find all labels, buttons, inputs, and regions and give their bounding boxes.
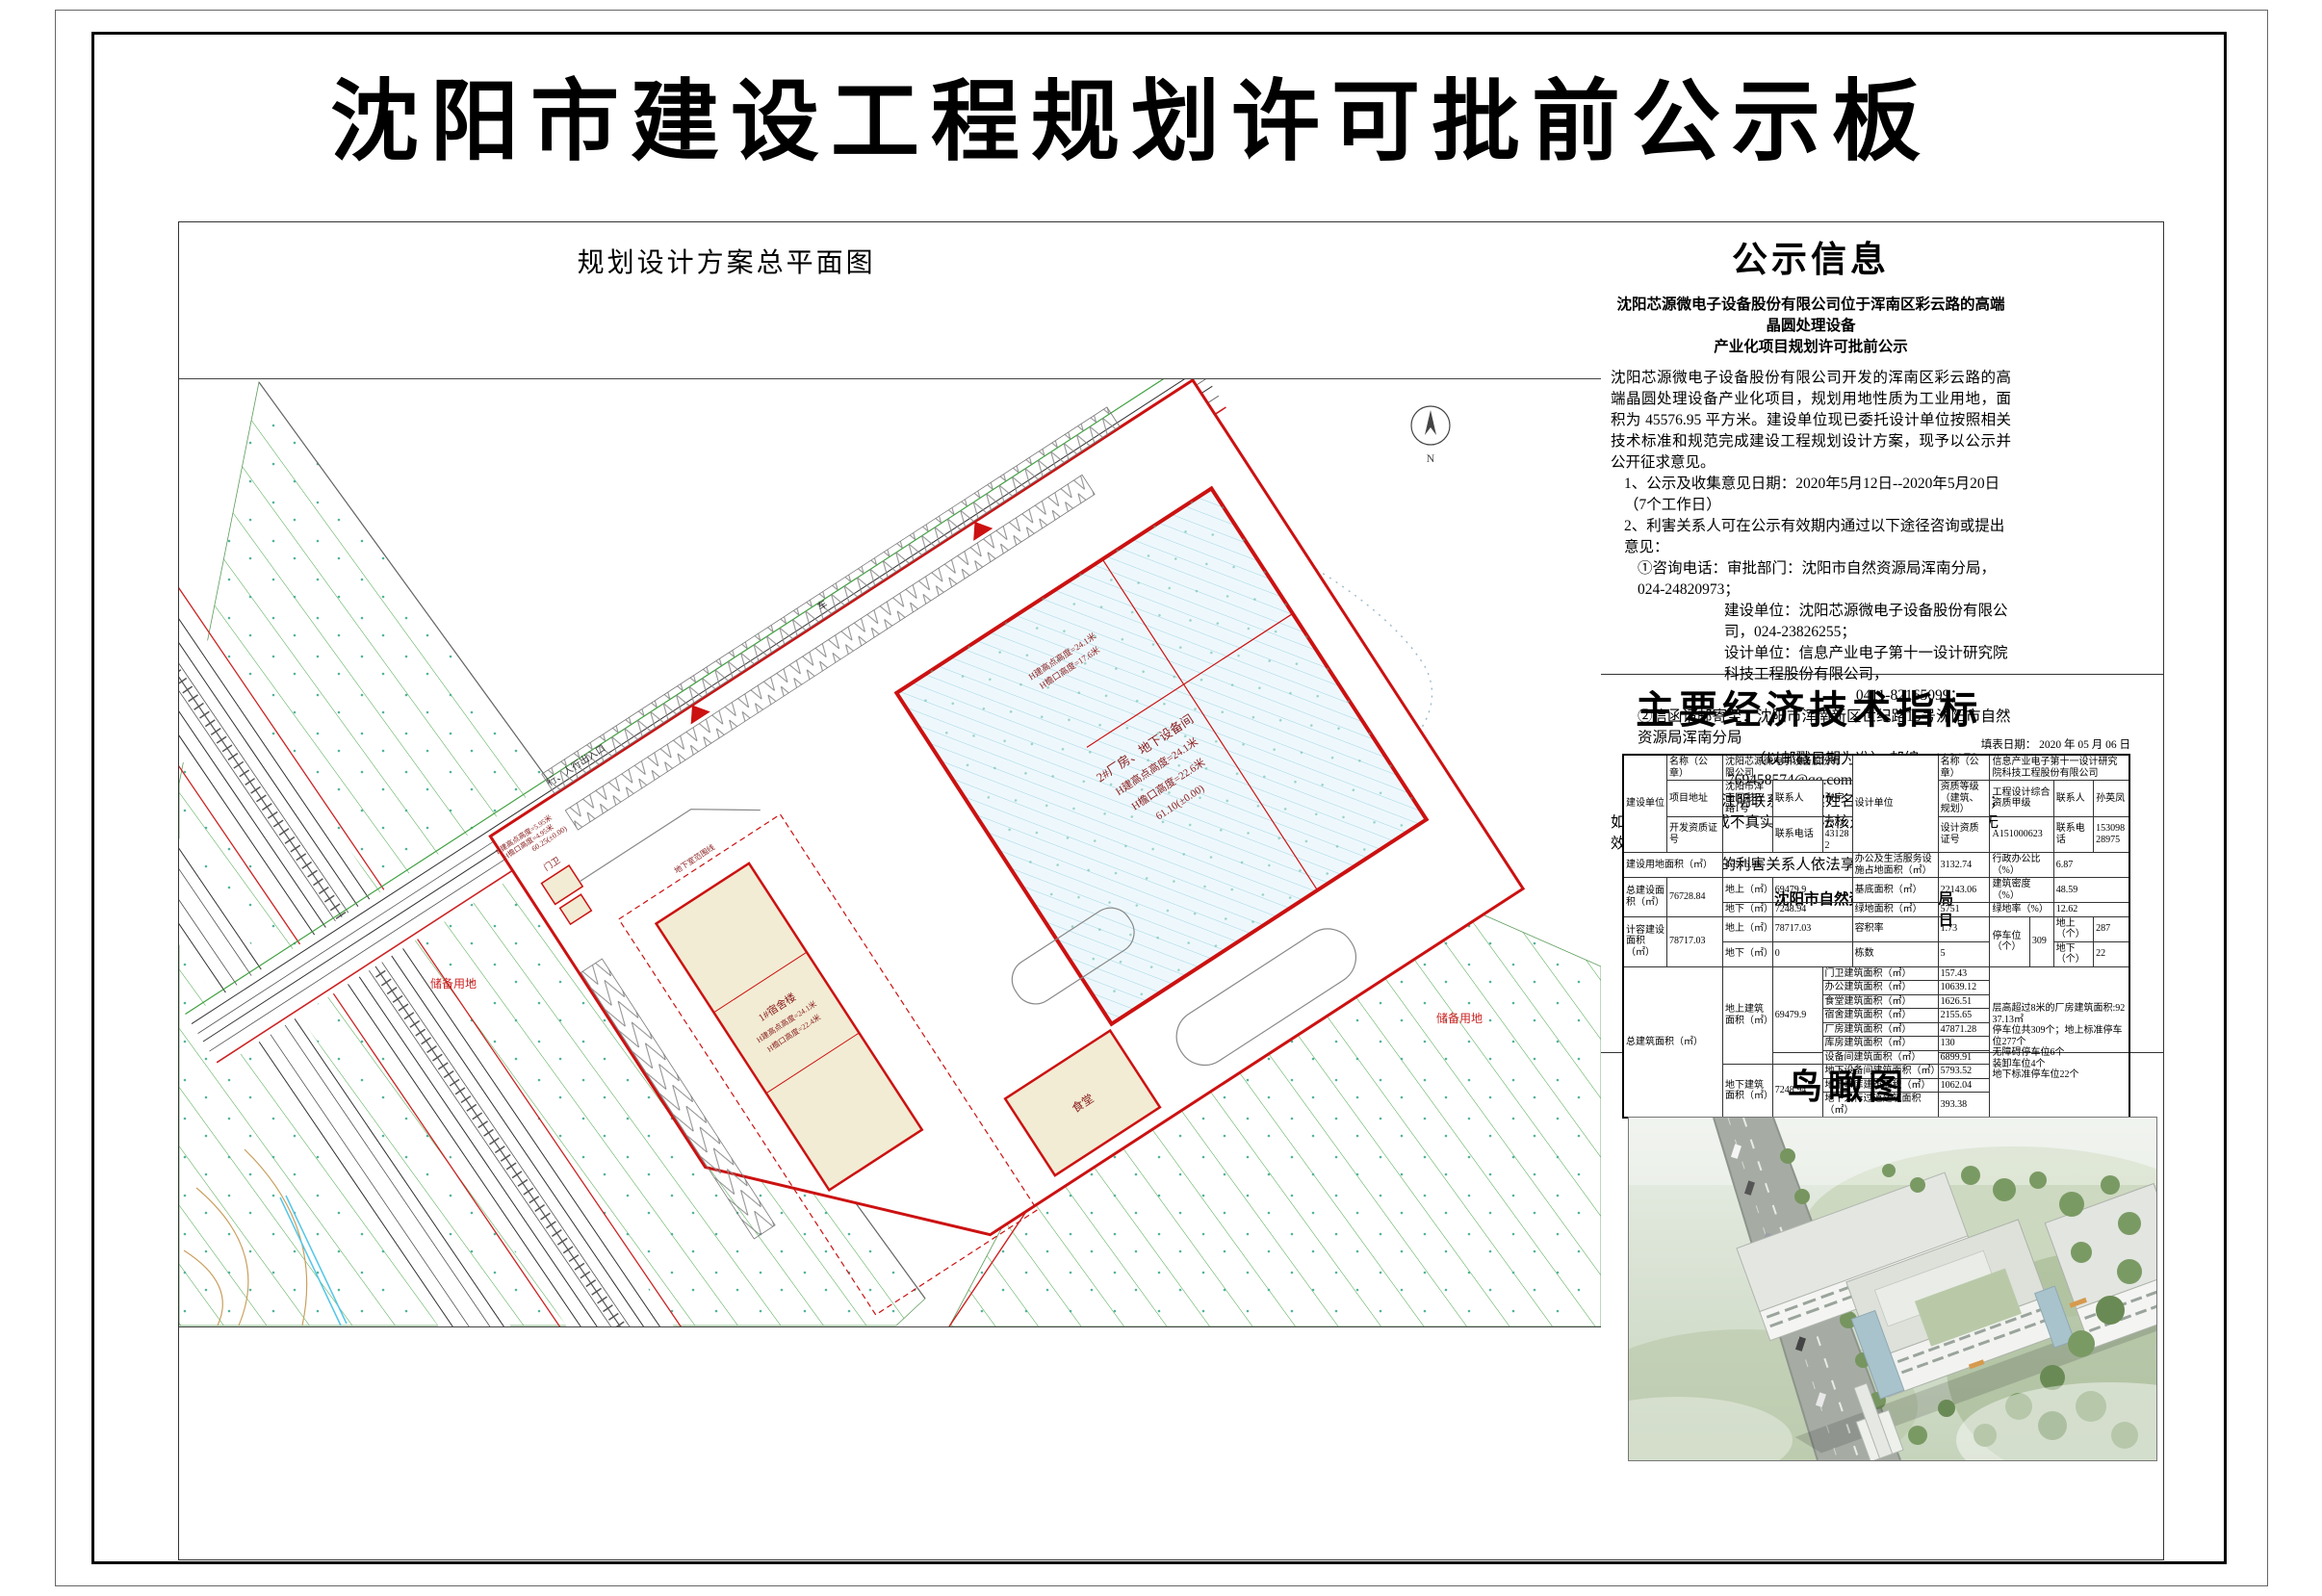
owner-addr-label: 项目地址: [1667, 781, 1723, 817]
below-value: 7248.94: [1772, 903, 1852, 917]
above-value: 69479.9: [1772, 878, 1852, 903]
blocks-label: 栋数: [1852, 941, 1938, 966]
page-title: 沈阳市建设工程规划许可批前公示板: [91, 50, 2171, 178]
cap-value: 78717.03: [1667, 916, 1723, 966]
notice-line-phone-owner: 建设单位：沈阳芯源微电子设备股份有限公司，024-23826255；: [1611, 601, 2011, 643]
public-notice-section: 公示信息 沈阳芯源微电子设备股份有限公司位于浑南区彩云路的高端晶圆处理设备 产业…: [1601, 222, 2163, 675]
designer-grade-label: 资质等级（建筑、规划）: [1938, 781, 1990, 817]
blocks-value: 5: [1938, 941, 1990, 966]
cap-below-value: 0: [1772, 941, 1852, 966]
designer-name: 信息产业电子第十一设计研究院科技工程股份有限公司: [1990, 755, 2129, 781]
notice-line-dates: 1、公示及收集意见日期：2020年5月12日--2020年5月20日（7个工作日…: [1611, 474, 2011, 516]
birdseye-rendering: [1628, 1117, 2157, 1461]
reserved-land-label-east: 储备用地: [1436, 1011, 1483, 1025]
green-value: 5751: [1938, 903, 1990, 917]
notice-subtitle: 沈阳芯源微电子设备股份有限公司位于浑南区彩云路的高端晶圆处理设备 产业化项目规划…: [1611, 295, 2011, 358]
designer-contact: 孙英凤: [2094, 781, 2129, 817]
gfa-above-value: 69479.9: [1772, 966, 1822, 1065]
indicators-section: 主要经济技术指标 填表日期： 2020 年 05 月 06 日 建设单位 名称（…: [1601, 675, 2163, 1053]
item-value: 2155.65: [1938, 1009, 1990, 1023]
admin-ratio-label: 行政办公比（%）: [1990, 853, 2053, 878]
designer-contact-label: 联系人: [2053, 781, 2093, 817]
item-label: 库房建筑面积（㎡）: [1822, 1037, 1938, 1051]
designer-phone: 15309828975: [2094, 816, 2129, 853]
table-row: 总建筑面积（㎡） 地上建筑面积（㎡） 69479.9 门卫建筑面积（㎡） 157…: [1623, 966, 2129, 981]
green-label: 绿地面积（㎡）: [1852, 903, 1938, 917]
reserved-land-label-west: 储备用地: [430, 976, 477, 991]
owner-group-cell: 建设单位: [1623, 755, 1667, 853]
site-plan-panel: 规划设计方案总平面图: [178, 221, 1602, 1560]
owner-phone-label: 联系电话: [1772, 816, 1822, 853]
item-value: 47871.28: [1938, 1022, 1990, 1037]
item-label: 门卫建筑面积（㎡）: [1822, 966, 1938, 981]
green-rate-label: 绿地率（%）: [1990, 903, 2053, 917]
owner-phone: 13332431282: [1822, 816, 1852, 853]
cap-above-value: 78717.03: [1772, 916, 1852, 941]
item-label: 办公建筑面积（㎡）: [1822, 981, 1938, 995]
land-value: 45576.95: [1723, 853, 1853, 878]
density-label: 建筑密度（%）: [1990, 878, 2053, 903]
green-rate-value: 12.62: [2053, 903, 2129, 917]
base-label: 基底面积（㎡）: [1852, 878, 1938, 903]
designer-cert: A151000623: [1990, 816, 2053, 853]
item-value: 130: [1938, 1037, 1990, 1051]
item-label: 厂房建筑面积（㎡）: [1822, 1022, 1938, 1037]
park-above-value: 287: [2094, 916, 2129, 941]
fill-date: 填表日期： 2020 年 05 月 06 日: [1622, 736, 2130, 752]
indicators-title: 主要经济技术指标: [1601, 679, 2017, 734]
below-label: 地下（㎡）: [1723, 903, 1773, 917]
notice-title: 公示信息: [1611, 236, 2011, 287]
item-value: 1626.51: [1938, 994, 1990, 1009]
table-row: 建设单位 名称（公章） 沈阳芯源微电子设备股份有限公司 设计单位 名称（公章） …: [1623, 755, 2129, 781]
designer-phone-label: 联系电话: [2053, 816, 2093, 853]
total-label: 总建设面积（㎡）: [1623, 878, 1667, 917]
far-value: 1.73: [1938, 916, 1990, 941]
office-land-value: 3132.74: [1938, 853, 1990, 878]
cap-below-label: 地下（㎡）: [1723, 941, 1773, 966]
cap-label: 计容建设面积（㎡）: [1623, 916, 1667, 966]
designer-name-label: 名称（公章）: [1938, 755, 1990, 781]
table-row: 总建设面积（㎡） 76728.84 地上（㎡） 69479.9 基底面积（㎡） …: [1623, 878, 2129, 903]
designer-group-cell: 设计单位: [1852, 755, 1938, 853]
park-below-label: 地下（个）: [2053, 941, 2093, 966]
land-label: 建设用地面积（㎡）: [1623, 853, 1723, 878]
admin-ratio-value: 6.87: [2053, 853, 2129, 878]
site-plan-title: 规划设计方案总平面图: [179, 242, 1274, 280]
right-panel: 公示信息 沈阳芯源微电子设备股份有限公司位于浑南区彩云路的高端晶圆处理设备 产业…: [1601, 221, 2164, 1560]
birdseye-section: 鸟瞰图: [1601, 1053, 2163, 1558]
cap-above-label: 地上（㎡）: [1723, 916, 1773, 941]
designer-grade: 工程设计综合资质甲级: [1990, 781, 2053, 817]
table-row: 建设用地面积（㎡） 45576.95 办公及生活服务设施占地面积（㎡） 3132…: [1623, 853, 2129, 878]
park-above-label: 地上（个）: [2053, 916, 2093, 941]
owner-name-label: 名称（公章）: [1667, 755, 1723, 781]
item-value: 10639.12: [1938, 981, 1990, 995]
owner-addr: 沈阳市浑南区彩云路1号: [1723, 781, 1773, 817]
far-label: 容积率: [1852, 916, 1938, 941]
notice-line-channels: 2、利害关系人可在公示有效期内通过以下途径咨询或提出意见：: [1611, 516, 2011, 558]
density-value: 48.59: [2053, 878, 2129, 903]
north-label: N: [1427, 451, 1435, 465]
owner-contact: 张宇: [1822, 781, 1852, 817]
item-value: 157.43: [1938, 966, 1990, 981]
park-below-value: 22: [2094, 941, 2129, 966]
birdseye-title: 鸟瞰图: [1601, 1059, 2096, 1109]
owner-name: 沈阳芯源微电子设备股份有限公司: [1723, 755, 1853, 781]
item-label: 食堂建筑面积（㎡）: [1822, 994, 1938, 1009]
base-value: 22143.06: [1938, 878, 1990, 903]
total-value: 76728.84: [1667, 878, 1723, 917]
designer-cert-label: 设计资质证号: [1938, 816, 1990, 853]
office-land-label: 办公及生活服务设施占地面积（㎡）: [1852, 853, 1938, 878]
owner-cert: [1723, 816, 1773, 853]
gfa-above-label: 地上建筑面积（㎡）: [1723, 966, 1773, 1065]
notice-line-phone-approval: ①咨询电话：审批部门：沈阳市自然资源局浑南分局，024-24820973；: [1611, 558, 2011, 601]
site-plan-drawing: 2#厂房、地下设备间 H建高点高度=24.1米 H檐口高度=22.6米 61.1…: [179, 379, 1601, 1326]
park-value: 309: [2029, 916, 2053, 966]
item-label: 宿舍建筑面积（㎡）: [1822, 1009, 1938, 1023]
owner-contact-label: 联系人: [1772, 781, 1822, 817]
table-row: 计容建设面积（㎡） 78717.03 地上（㎡） 78717.03 容积率 1.…: [1623, 916, 2129, 941]
above-label: 地上（㎡）: [1723, 878, 1773, 903]
site-plan-drawing-area: 2#厂房、地下设备间 H建高点高度=24.1米 H檐口高度=22.6米 61.1…: [179, 378, 1601, 1327]
notice-paragraph: 沈阳芯源微电子设备股份有限公司开发的浑南区彩云路的高端晶圆处理设备产业化项目，规…: [1611, 368, 2011, 474]
owner-cert-label: 开发资质证号: [1667, 816, 1723, 853]
park-label: 停车位（个）: [1990, 916, 2029, 966]
